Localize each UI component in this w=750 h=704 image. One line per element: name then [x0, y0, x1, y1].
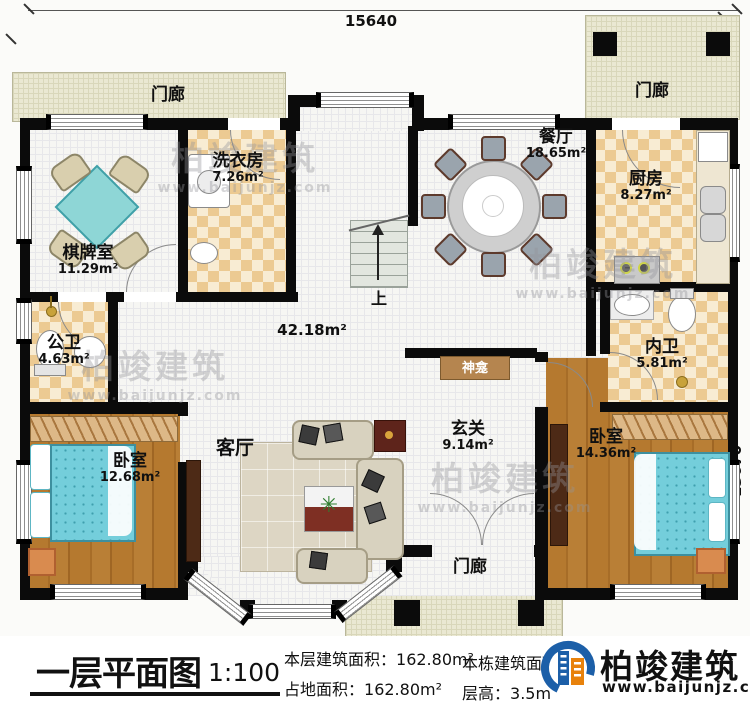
room-label-porch-top-right: 门廊 [635, 82, 669, 101]
wardrobe [30, 416, 178, 442]
wall [534, 545, 548, 557]
dimension-top-label: 15640 [336, 12, 406, 30]
shower-hose [50, 296, 52, 308]
shrine: 神龛 [440, 356, 510, 380]
room-label-bedroom-right: 卧室14.36m² [576, 428, 636, 462]
corner-tick [5, 33, 16, 44]
room-label-inner-bath: 内卫5.81m² [636, 338, 687, 372]
coffee-table [304, 486, 354, 532]
footer: 一层平面图 1:100 本层建筑面积：162.80m² 占地面积：162.80m… [0, 636, 750, 704]
brand-url: www.baijunjz.com [602, 678, 750, 696]
plant-icon [320, 497, 338, 516]
room-label-porch-bottom: 门廊 [453, 558, 487, 577]
window [16, 298, 32, 344]
room-label-public-bath: 公卫4.63m² [38, 334, 89, 368]
window [610, 584, 706, 600]
dining-table-center [482, 195, 504, 217]
window [50, 584, 146, 600]
window [316, 92, 414, 108]
laundry-sink [190, 242, 218, 264]
speaker-icon [385, 431, 393, 439]
door-opening [228, 118, 280, 130]
bay-window-center [248, 604, 336, 619]
room-label-porch-top-left: 门廊 [151, 86, 185, 105]
room-label-laundry: 洗衣房7.26m² [212, 152, 263, 186]
sofa-pillow [323, 423, 344, 444]
stair-arrow [377, 234, 379, 280]
pillow [708, 458, 726, 498]
bedside-rug [696, 548, 726, 574]
fridge [698, 132, 728, 162]
kitchen-sink [700, 186, 726, 214]
sofa-pillow [309, 551, 328, 570]
porch-column [394, 600, 420, 626]
door-opening [124, 292, 176, 302]
porch-column [706, 32, 730, 56]
pillow [708, 502, 726, 542]
plan-scale: 1:100 [208, 658, 280, 687]
room-label-living: 客厅 [216, 438, 254, 459]
watermark: 柏竣建筑www.baijunjz.com [498, 238, 708, 302]
stat-floor-area: 本层建筑面积：162.80m² [284, 646, 474, 670]
shrine-label: 神龛 [462, 361, 488, 376]
chair [481, 136, 506, 161]
dimension-tick [731, 3, 742, 14]
headboard-cabinet [30, 492, 52, 538]
interior-floor-recess [296, 107, 424, 131]
dimension-tick [23, 3, 34, 14]
floor-plan: 15640 13670 [0, 0, 750, 640]
brand-logo-icon [538, 638, 598, 698]
title-underline [30, 692, 280, 696]
wall [178, 402, 188, 416]
room-label-hall-area: 42.18m² [277, 322, 347, 339]
chair [542, 194, 567, 219]
room-label-chess: 棋牌室11.29m² [58, 244, 118, 278]
room-label-entry: 玄关9.14m² [442, 420, 493, 454]
wall [408, 126, 418, 226]
window [46, 114, 148, 130]
window [16, 166, 32, 244]
room-label-dining: 餐厅18.65m² [526, 128, 586, 162]
floor-drain-icon [676, 376, 688, 388]
sofa-pillow [298, 424, 319, 445]
wall [535, 352, 548, 362]
dimension-line-top [28, 10, 740, 11]
door-opening [58, 292, 106, 302]
sofa [296, 548, 368, 584]
bedside-rug [28, 548, 56, 576]
stat-footprint-area: 占地面积：162.80m² [284, 676, 442, 700]
bedroom-door-leaf [186, 460, 201, 562]
wall [600, 402, 738, 412]
room-label-bedroom-left: 卧室12.68m² [100, 452, 160, 486]
watermark: 柏竣建筑www.baijunjz.com [400, 452, 610, 516]
room-label-kitchen: 厨房8.27m² [620, 170, 671, 204]
porch-column [518, 600, 544, 626]
door-opening [612, 118, 680, 130]
headboard-cabinet [30, 444, 52, 490]
blanket [634, 454, 656, 550]
stair-arrow-head [372, 224, 384, 235]
plan-title: 一层平面图 [36, 646, 201, 695]
porch-top-right-floor [585, 15, 740, 120]
chair [421, 194, 446, 219]
porch-column [593, 32, 617, 56]
stairs-up-label: 上 [371, 290, 387, 308]
